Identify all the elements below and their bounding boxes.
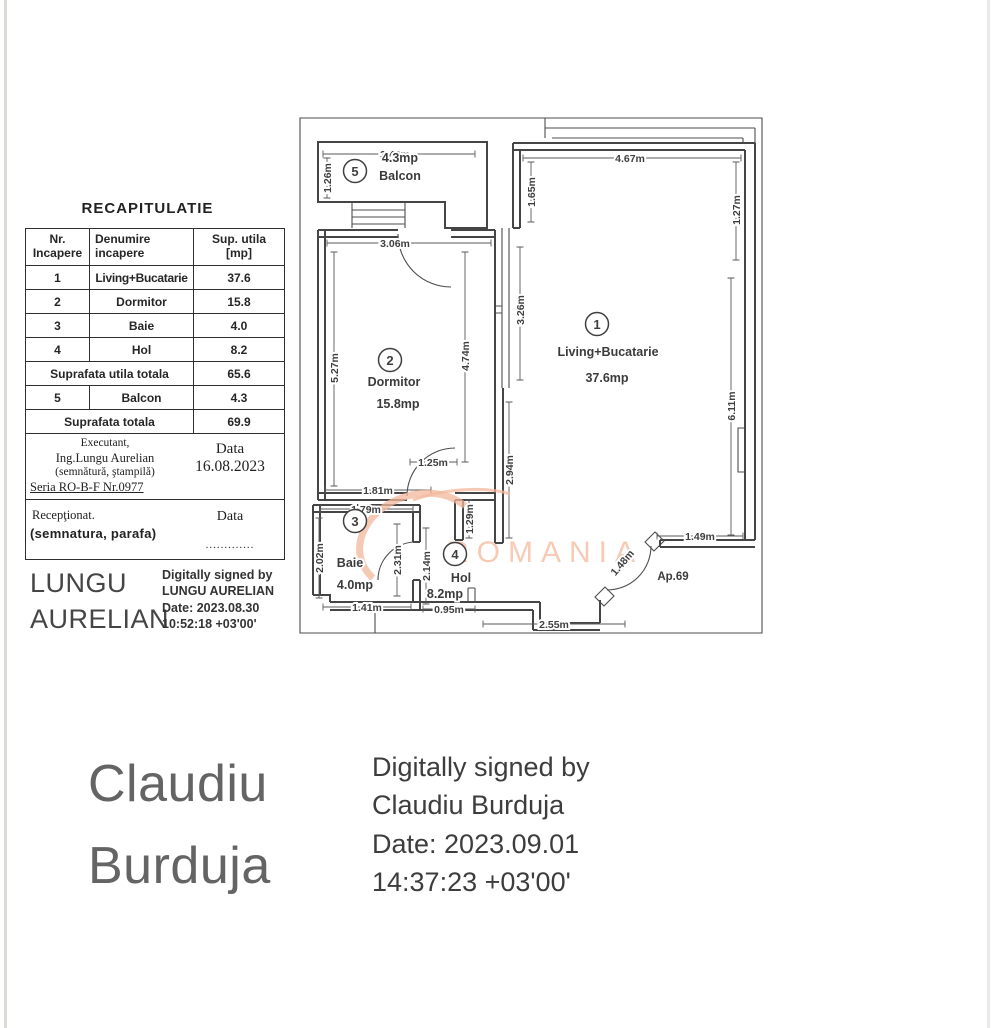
cell-nr: 3 xyxy=(26,314,90,338)
room-label: 15.8mp xyxy=(376,397,419,411)
room-number: 5 xyxy=(351,164,358,179)
header-denumire: Denumire incapere xyxy=(90,229,194,266)
cell-name: Balcon xyxy=(90,386,194,410)
recap-table: Nr. Incapere Denumire incapere Sup. util… xyxy=(25,228,285,560)
cell-area: 15.8 xyxy=(194,290,285,314)
table-row: 2 Dormitor 15.8 xyxy=(26,290,285,314)
total-value: 69.9 xyxy=(194,410,285,434)
recap-section: RECAPITULATIE Nr. Incapere Denumire inca… xyxy=(25,200,270,560)
cell-nr: 1 xyxy=(26,266,90,290)
cell-name: Hol xyxy=(90,338,194,362)
total-row: Suprafata totala 69.9 xyxy=(26,410,285,434)
page-edge-left xyxy=(4,0,7,1028)
recap-title: RECAPITULATIE xyxy=(25,200,270,217)
room-number: 2 xyxy=(386,353,393,368)
dimension-label: 4.67m xyxy=(615,153,645,165)
total-utila-label: Suprafata utila totala xyxy=(26,362,194,386)
header-sup-utila: Sup. utila [mp] xyxy=(194,229,285,266)
dimension-label: 1.27m xyxy=(731,195,743,225)
cell-nr: 2 xyxy=(26,290,90,314)
dimension-label: 2.02m xyxy=(314,543,326,573)
signature-burduja-details: Digitally signed by Claudiu Burduja Date… xyxy=(372,748,672,901)
dimension-label: 4.74m xyxy=(460,341,472,371)
dimension-label: 1.65m xyxy=(526,177,538,207)
room-label: 4.3mp xyxy=(382,151,418,165)
dimension-label: 2.31m xyxy=(392,545,404,575)
cell-nr: 5 xyxy=(26,386,90,410)
cell-name: Baie xyxy=(90,314,194,338)
table-row: 5 Balcon 4.3 xyxy=(26,386,285,410)
room-number: 3 xyxy=(351,514,358,529)
room-label: Hol xyxy=(451,571,471,585)
room-number: 4 xyxy=(451,547,459,562)
total-utila-value: 65.6 xyxy=(194,362,285,386)
dimension-label: 3.06m xyxy=(380,238,410,250)
total-label: Suprafata totala xyxy=(26,410,194,434)
signature-burduja-name: Claudiu Burduja xyxy=(88,744,271,907)
apartment-number-label: Ap.69 xyxy=(657,571,688,583)
dimension-label: 1.49m xyxy=(685,531,715,543)
receptionat-date-block: Data ............. xyxy=(180,506,280,551)
dimension-label: 2.94m xyxy=(504,455,516,485)
cell-name: Living+Bucatarie xyxy=(90,266,194,290)
room-label: Balcon xyxy=(379,169,421,183)
signature-lungu-details: Digitally signed by LUNGU AURELIAN Date:… xyxy=(162,567,292,632)
room-label: 4.0mp xyxy=(337,578,373,592)
cell-area: 4.0 xyxy=(194,314,285,338)
table-header-row: Nr. Incapere Denumire incapere Sup. util… xyxy=(26,229,285,266)
cell-area: 8.2 xyxy=(194,338,285,362)
table-row: 3 Baie 4.0 xyxy=(26,314,285,338)
dimension-label: 6.11m xyxy=(726,391,738,420)
page-edge-right xyxy=(987,0,990,1028)
dimension-label: 5.27m xyxy=(329,353,341,383)
room-label: Dormitor xyxy=(368,375,421,389)
cell-name: Dormitor xyxy=(90,290,194,314)
header-nr-incapere: Nr. Incapere xyxy=(26,229,90,266)
executant-date-block: Data 16.08.2023 xyxy=(180,437,280,495)
dimension-label: 1.26m xyxy=(322,163,334,193)
room-label: Living+Bucatarie xyxy=(557,345,658,359)
dimension-label: 3.26m xyxy=(515,295,527,325)
table-row: 4 Hol 8.2 xyxy=(26,338,285,362)
executant-block: Executant, Ing.Lungu Aurelian (semnătură… xyxy=(30,437,180,495)
floor-plan: ROMANIA 3.40m1.26m4.67m1.27m1.65m3.06m3.… xyxy=(295,110,765,640)
receptionat-block: Recepţionat. (semnatura, parafa) xyxy=(30,506,180,551)
dimension-label: 1.81m xyxy=(363,485,393,497)
room-label: Baie xyxy=(337,556,363,570)
room-label: 37.6mp xyxy=(585,371,628,385)
dimension-label: 2.55m xyxy=(539,619,569,631)
executant-row: Executant, Ing.Lungu Aurelian (semnătură… xyxy=(26,434,285,500)
table-row: 1 Living+Bucatarie 37.6 xyxy=(26,266,285,290)
cell-area: 4.3 xyxy=(194,386,285,410)
dimension-label: 1.29m xyxy=(464,504,476,534)
dimension-label: 2.14m xyxy=(421,551,433,581)
cell-nr: 4 xyxy=(26,338,90,362)
room-number: 1 xyxy=(593,317,600,332)
dimension-label: 1.25m xyxy=(418,457,448,469)
total-utila-row: Suprafata utila totala 65.6 xyxy=(26,362,285,386)
signature-lungu-name: LUNGU AURELIAN xyxy=(30,566,169,638)
room-label: 8.2mp xyxy=(427,587,463,601)
dimension-label: 1.41m xyxy=(352,602,382,614)
receptionat-row: Recepţionat. (semnatura, parafa) Data ..… xyxy=(26,499,285,559)
cell-area: 37.6 xyxy=(194,266,285,290)
dimension-label: 0.95m xyxy=(434,604,464,616)
